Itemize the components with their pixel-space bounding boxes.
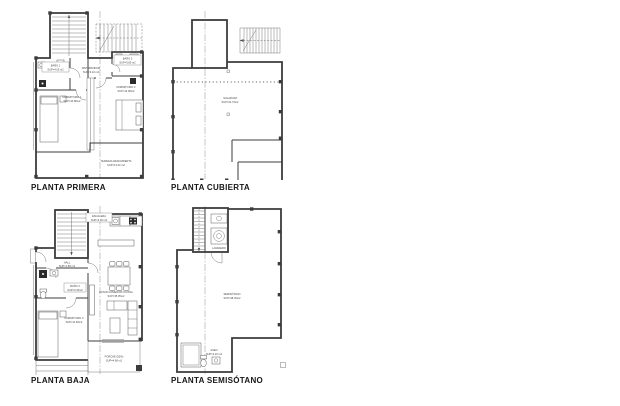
exterior-stair-dashed: [96, 24, 143, 52]
aseo-label: ASEO: [210, 348, 217, 352]
exterior-walls: [34, 13, 144, 178]
bed: [40, 96, 66, 142]
staircase: [57, 212, 86, 256]
plan-title-baja: PLANTA BAJA: [31, 376, 90, 385]
distribuidor-area: SUP=3.10 m2: [83, 70, 100, 74]
bano3-area: SUP=3.30m2: [67, 288, 83, 292]
hall-label: HALL: [64, 261, 71, 265]
terraza-label: TERRAZA DESCUBIERTA: [101, 159, 132, 163]
dormitorio3-area: SUP=11.50m2: [66, 320, 83, 324]
dormitorio3-label: DORMITORIO 3: [65, 316, 85, 320]
solarium-area: SUP=41.74m2: [222, 100, 239, 104]
estar-label: ESTAR COMEDOR COCINA: [99, 290, 133, 294]
roof-terrace-steps: [173, 70, 282, 180]
dormitorio2-area: SUP=13.08m2: [118, 89, 135, 93]
staircase: [193, 208, 205, 252]
semisotano-area: SUP=48.45m2: [224, 296, 241, 300]
plan-title-cubierta: PLANTA CUBIERTA: [171, 183, 250, 192]
bano2-area: SUP=3.85 m2: [119, 61, 136, 65]
exterior-walls: [173, 20, 282, 180]
bed: [116, 100, 143, 130]
estar-area: SUP=35.05m2: [108, 294, 125, 298]
solarium-label: SOLARIUM: [223, 96, 237, 100]
lavadero-label: LAVADERO: [212, 246, 226, 250]
semisotano-label: SEMISÓTANO: [223, 291, 240, 296]
porche-label: PORCHE (50%): [105, 355, 124, 359]
dormitorio1-area: SUP=10.80m2: [64, 99, 81, 103]
floor-plan-semisotano: SEMISÓTANO SUP=48.45m2 ASEO SUP=2.10 m2 …: [170, 205, 292, 375]
escalera-area: SUP=4.30 m2: [91, 218, 108, 222]
aseo-area: SUP=2.10 m2: [206, 352, 223, 356]
wall-pilasters: [171, 80, 282, 180]
plan-title-semisotano: PLANTA SEMISÓTANO: [171, 376, 263, 385]
distribuidor-label: DISTRIBUIDOR: [82, 66, 101, 70]
exterior-stair: [240, 28, 281, 53]
drawing-sheet: BAÑO 1 SUP=4.05 m2 BAÑO 2 SUP=3.85 m2 DI…: [0, 0, 620, 406]
escalera-label: ESCALERA: [92, 214, 106, 218]
porche-area: SUP=4.68 m2: [106, 358, 123, 362]
dormitorio1-label: DORMITORIO 1: [63, 95, 83, 99]
floor-plan-cubierta: SOLARIUM SUP=41.74m2: [170, 10, 292, 180]
dormitorio2-label: DORMITORIO 2: [117, 85, 137, 89]
terraza-area: SUP=13.20 m2: [107, 163, 125, 167]
room-labels: SOLARIUM SUP=41.74m2: [222, 96, 239, 104]
bed: [38, 311, 66, 357]
floor-plan-baja: ESCALERA SUP=4.30 m2 HALL SUP=1.80 m2 BA…: [30, 205, 160, 375]
staircase: [52, 15, 86, 57]
hall-area: SUP=1.80 m2: [59, 264, 76, 268]
plan-title-primera: PLANTA PRIMERA: [31, 183, 106, 192]
room-labels: SEMISÓTANO SUP=48.45m2 ASEO SUP=2.10 m2 …: [206, 246, 241, 356]
bathroom3-fixtures: [39, 270, 58, 299]
dining-table: [108, 262, 130, 291]
floor-plan-primera: BAÑO 1 SUP=4.05 m2 BAÑO 2 SUP=3.85 m2 DI…: [30, 10, 160, 180]
laundry-fixtures: [211, 214, 227, 263]
bano1-area: SUP=4.05 m2: [47, 68, 64, 72]
